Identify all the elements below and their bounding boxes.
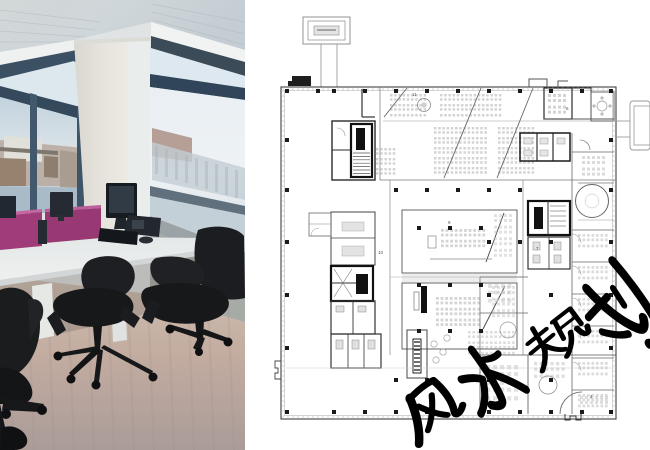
svg-text:11: 11 <box>412 92 417 97</box>
svg-text:10: 10 <box>378 250 384 255</box>
